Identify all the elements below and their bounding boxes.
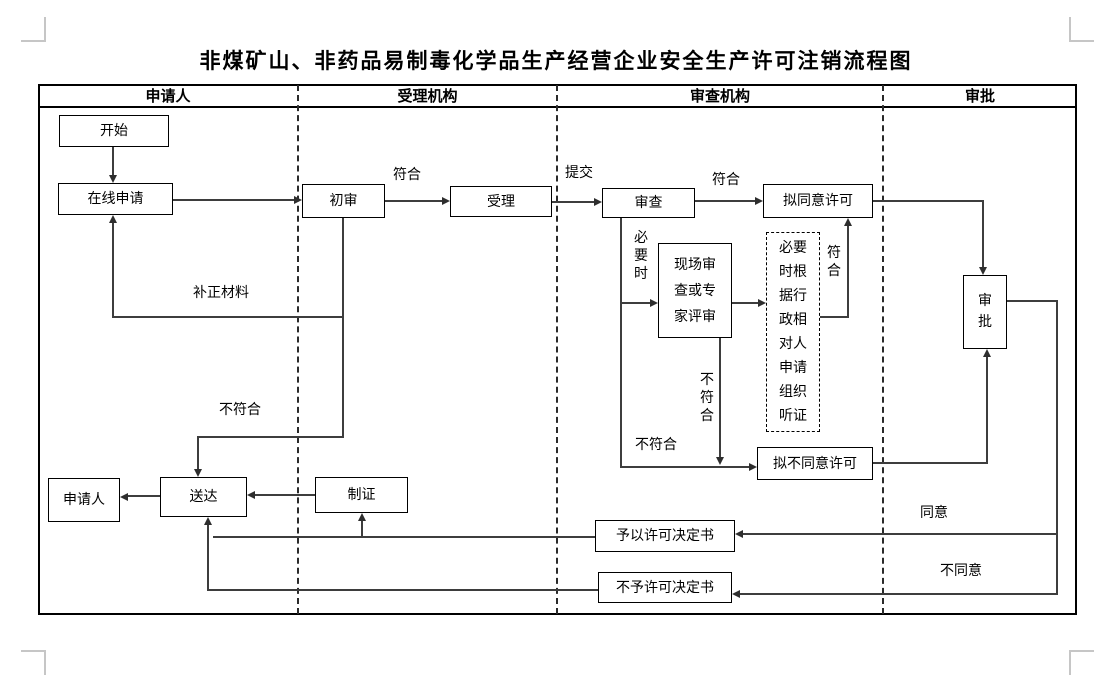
node-onsite-review: 现场审查或专家评审 (658, 243, 732, 338)
arrowhead (983, 349, 991, 357)
arrowhead (194, 469, 202, 477)
arrowhead (650, 299, 658, 307)
lane-header-approval: 审批 (883, 86, 1077, 106)
node-deliver: 送达 (160, 477, 247, 517)
arrowhead (755, 197, 763, 205)
edge-label-not-conform-vertical: 不符合 (699, 371, 715, 425)
page-corner-mark-top-right (1069, 17, 1094, 42)
node-online-apply: 在线申请 (58, 183, 173, 215)
lane-header-review-agency: 审查机构 (557, 86, 883, 106)
connector-line (982, 201, 984, 268)
lane-divider-1 (297, 85, 299, 614)
edge-label-supplement-materials: 补正材料 (193, 285, 249, 301)
arrowhead (204, 517, 212, 525)
arrowhead (979, 267, 987, 275)
node-approval: 审批 (963, 275, 1007, 349)
connector-line (112, 147, 114, 178)
node-grant-decision: 予以许可决定书 (595, 520, 735, 552)
arrowhead (442, 197, 450, 205)
connector-line (742, 533, 1058, 535)
edge-label-when-necessary: 必要时 (633, 229, 649, 283)
edge-label-conform-2: 符合 (712, 172, 740, 188)
node-hearing: 必要时根据行政相对人申请组织听证 (766, 232, 820, 432)
connector-line (213, 536, 595, 538)
edge-label-conform-1: 符合 (393, 167, 421, 183)
lane-header-applicant: 申请人 (38, 86, 298, 106)
edge-label-agree: 同意 (920, 505, 948, 521)
connector-line (197, 436, 344, 438)
arrowhead (247, 491, 255, 499)
connector-line (112, 316, 343, 318)
connector-line (342, 218, 344, 438)
connector-line (620, 218, 622, 468)
connector-line (254, 494, 315, 496)
connector-line (873, 200, 984, 202)
node-propose-disapprove: 拟不同意许可 (757, 447, 873, 480)
connector-line (207, 589, 598, 591)
node-preliminary-review: 初审 (302, 184, 385, 218)
connector-line (732, 302, 759, 304)
arrowhead (735, 530, 743, 538)
connector-line (173, 199, 295, 201)
arrowhead (109, 215, 117, 223)
arrowhead (844, 218, 852, 226)
node-accept: 受理 (450, 186, 552, 217)
node-applicant: 申请人 (48, 478, 120, 522)
edge-label-not-conform-left: 不符合 (635, 437, 677, 453)
connector-line (847, 225, 849, 318)
arrowhead (758, 299, 766, 307)
node-propose-approve: 拟同意许可 (763, 184, 873, 218)
node-review: 审查 (602, 188, 695, 218)
page-title: 非煤矿山、非药品易制毒化学品生产经营企业安全生产许可注销流程图 (0, 45, 1112, 75)
arrowhead (358, 513, 366, 521)
arrowhead (594, 198, 602, 206)
page-corner-mark-top-left (21, 17, 46, 42)
connector-line (820, 316, 848, 318)
connector-line (621, 466, 750, 468)
arrowhead (732, 590, 740, 598)
node-deny-decision: 不予许可决定书 (598, 572, 732, 603)
arrowhead (716, 457, 724, 465)
connector-line (385, 200, 443, 202)
lane-divider-2 (556, 85, 558, 614)
connector-line (719, 338, 721, 457)
arrowhead (294, 196, 302, 204)
node-make-cert: 制证 (315, 477, 408, 513)
edge-label-submit: 提交 (565, 165, 593, 181)
connector-line (112, 220, 114, 318)
connector-line (739, 593, 1058, 595)
connector-line (552, 201, 595, 203)
page-corner-mark-bottom-right (1069, 650, 1094, 675)
arrowhead (749, 463, 757, 471)
connector-line (1056, 300, 1058, 595)
arrowhead (109, 175, 117, 183)
edge-label-disagree: 不同意 (940, 563, 982, 579)
edge-label-conform-3: 符合 (826, 244, 842, 280)
node-start: 开始 (59, 115, 169, 147)
arrowhead (120, 493, 128, 501)
connector-line (873, 462, 988, 464)
connector-line (127, 495, 160, 497)
connector-line (1007, 300, 1057, 302)
flowchart-page: 非煤矿山、非药品易制毒化学品生产经营企业安全生产许可注销流程图 申请人 受理机构… (0, 0, 1112, 675)
edge-label-not-conform-mid: 不符合 (219, 402, 261, 418)
connector-line (695, 200, 756, 202)
connector-line (197, 437, 199, 471)
connector-line (207, 524, 209, 591)
connector-line (986, 356, 988, 464)
lane-header-accepting-agency: 受理机构 (298, 86, 557, 106)
page-corner-mark-bottom-left (21, 650, 46, 675)
connector-line (621, 302, 651, 304)
